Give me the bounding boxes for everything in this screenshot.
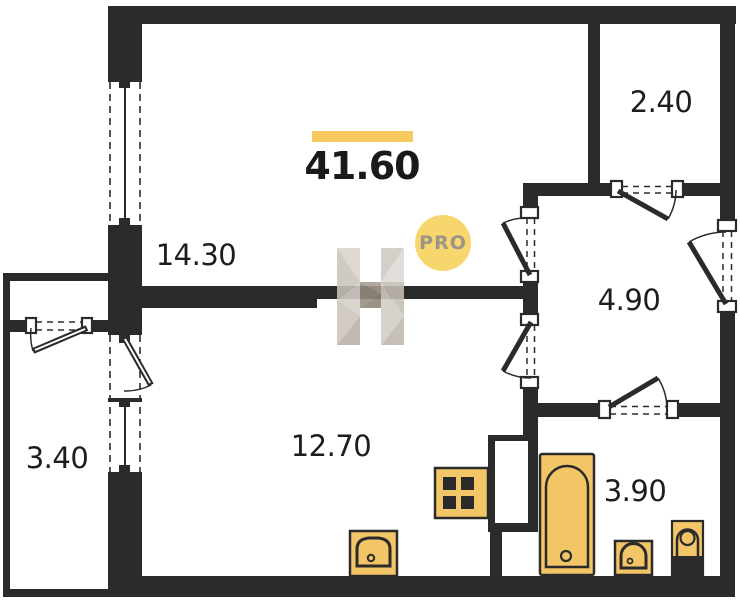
wall-vertical-seg4 [528, 435, 538, 523]
pro-badge: PRO [415, 215, 471, 271]
wall-balcony-top [3, 273, 108, 281]
wall-vertical-seg2 [523, 282, 538, 314]
door-leaf [689, 242, 726, 304]
wall-balcony-partition-left [10, 320, 27, 332]
window-sill-mark [119, 398, 130, 407]
wall-bottom-main [142, 576, 735, 597]
door-leaf [609, 378, 658, 407]
door-storage [611, 181, 683, 219]
door-bathroom [599, 378, 678, 418]
wall-vertical-seg1 [523, 183, 538, 207]
wall-left-corner-block [108, 6, 142, 82]
door-post [718, 220, 736, 231]
door-room-to-hall [503, 207, 538, 282]
balcony-door-window-unit [108, 330, 151, 477]
total-area-accent-bar [312, 131, 413, 142]
window-sill-mark [119, 218, 130, 227]
door-arc [124, 385, 151, 391]
door-kitchen-to-hall [503, 314, 538, 388]
total-area-label: 41.60 [292, 144, 432, 188]
wall-bath-top-right [678, 403, 720, 417]
door-balcony-partition [26, 318, 92, 351]
door-arc [689, 232, 726, 242]
area-label-bathroom: 3.90 [585, 474, 685, 508]
area-label-top-left-room: 14.30 [146, 238, 246, 272]
wall-mid-thick [142, 286, 317, 308]
wall-balcony-left [3, 273, 10, 597]
wall-right-lower [720, 311, 735, 597]
shaft-wall-bottom [488, 523, 538, 532]
door-entrance [689, 220, 736, 312]
door-leaf-core [125, 339, 150, 383]
area-label-bottom-room: 12.70 [271, 429, 391, 463]
window-sill-mark [119, 465, 130, 474]
wall-left-mid-block [108, 225, 142, 330]
wall-storage-left [588, 24, 600, 183]
window-sill-mark [119, 79, 130, 88]
door-leaf-core [35, 329, 85, 350]
door-arc [658, 378, 667, 409]
door-leaf [618, 191, 668, 219]
toilet-icon [672, 521, 703, 575]
door-post [599, 401, 610, 418]
wall-right-upper [720, 6, 735, 220]
washbasin-icon [615, 541, 652, 575]
floor-plan: 41.60 PRO 14.30 2.40 4.90 12.70 3.40 3.9… [0, 0, 740, 600]
sill-line [108, 330, 142, 335]
balcony-door [124, 337, 151, 391]
door-post [672, 181, 683, 197]
wall-hall-top-right [683, 183, 720, 196]
area-label-hall: 4.90 [579, 283, 679, 317]
wall-bath-top-left [538, 403, 599, 417]
watermark-logo-icon [337, 248, 404, 345]
stove-icon [435, 468, 488, 518]
window-top-left [110, 79, 140, 227]
area-label-top-right-room: 2.40 [611, 85, 711, 119]
door-post [521, 207, 538, 218]
wall-left-lower-block [108, 477, 142, 597]
door-leaf [503, 223, 530, 275]
shaft-wall-top [488, 435, 538, 441]
wall-top [108, 6, 736, 24]
bathtub-icon [540, 454, 594, 575]
wall-bottom-balcony [3, 589, 108, 597]
kitchen-sink-icon [350, 531, 397, 576]
door-post [667, 401, 678, 418]
wall-balcony-partition-right [92, 320, 108, 332]
area-label-balcony: 3.40 [7, 441, 107, 475]
wall-bath-kitchen [490, 532, 502, 576]
wall-vertical-seg3 [523, 388, 538, 435]
